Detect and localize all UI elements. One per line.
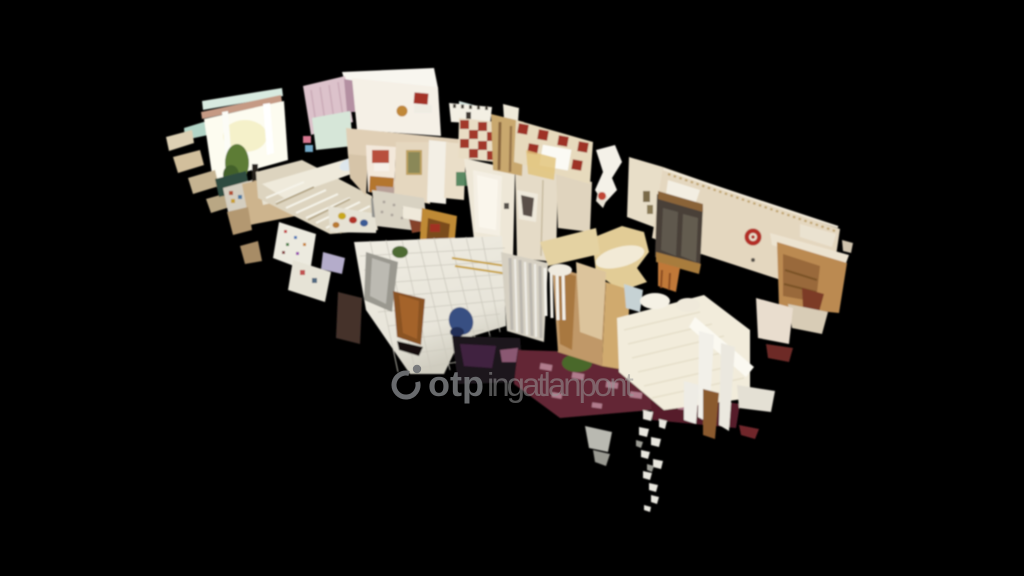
- svg-text:ingatlanpont: ingatlanpont: [487, 366, 634, 403]
- svg-text:otp: otp: [428, 363, 484, 404]
